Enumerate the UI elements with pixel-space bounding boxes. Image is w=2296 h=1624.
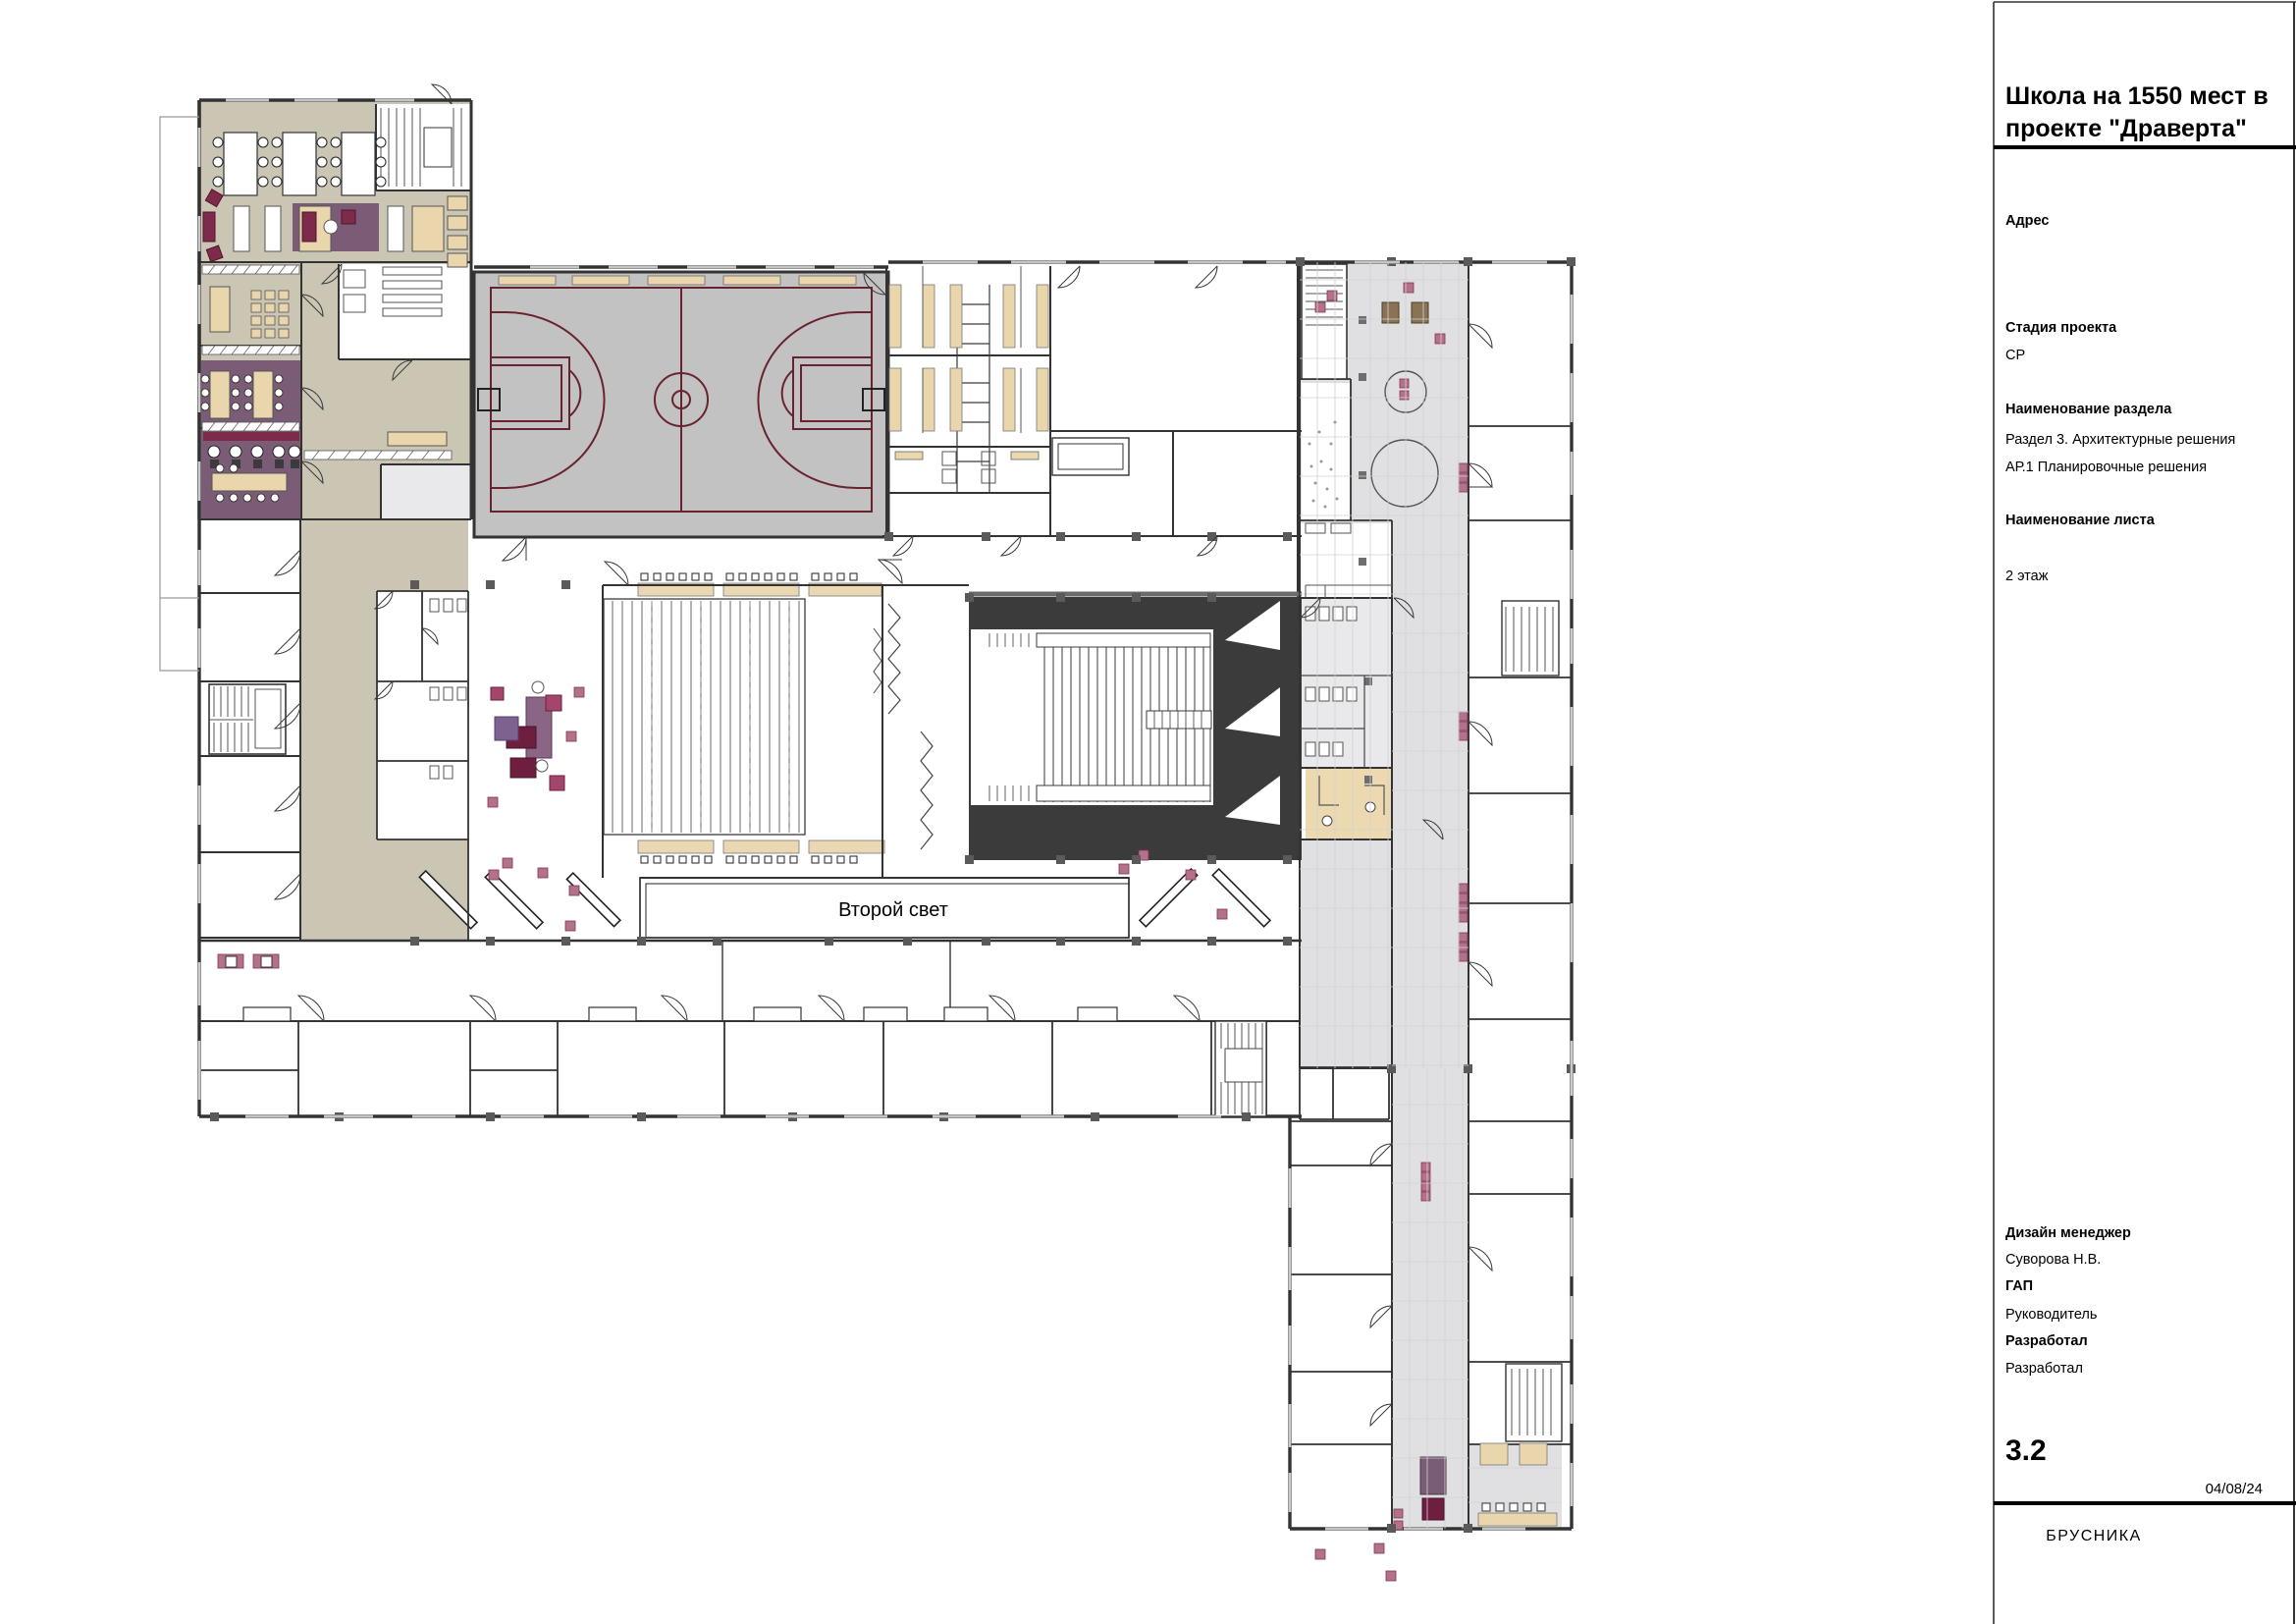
svg-text:БРУСНИКА: БРУСНИКА bbox=[2046, 1528, 2142, 1544]
svg-text:Разработал: Разработал bbox=[2005, 1361, 2083, 1377]
svg-text:АР.1 Планировочные решения: АР.1 Планировочные решения bbox=[2005, 460, 2207, 475]
svg-text:СР: СР bbox=[2005, 348, 2025, 363]
svg-text:2 этаж: 2 этаж bbox=[2005, 568, 2049, 584]
svg-text:04/08/24: 04/08/24 bbox=[2206, 1481, 2263, 1497]
svg-text:Адрес: Адрес bbox=[2005, 213, 2049, 229]
svg-text:ГАП: ГАП bbox=[2005, 1278, 2033, 1294]
svg-text:Суворова Н.В.: Суворова Н.В. bbox=[2005, 1252, 2101, 1268]
svg-text:Школа на 1550 мест в: Школа на 1550 мест в bbox=[2005, 82, 2269, 110]
svg-text:Руководитель: Руководитель bbox=[2005, 1307, 2097, 1323]
svg-text:Второй свет: Второй свет bbox=[838, 899, 948, 921]
svg-text:3.2: 3.2 bbox=[2005, 1435, 2047, 1467]
svg-text:Стадия проекта: Стадия проекта bbox=[2005, 320, 2117, 336]
svg-text:Разработал: Разработал bbox=[2005, 1333, 2088, 1349]
svg-text:Наименование раздела: Наименование раздела bbox=[2005, 402, 2172, 417]
svg-text:проекте "Драверта": проекте "Драверта" bbox=[2005, 115, 2247, 142]
svg-text:Наименование листа: Наименование листа bbox=[2005, 513, 2156, 528]
svg-text:Раздел 3. Архитектурные решени: Раздел 3. Архитектурные решения bbox=[2005, 432, 2235, 448]
svg-text:Дизайн менеджер: Дизайн менеджер bbox=[2005, 1225, 2131, 1241]
